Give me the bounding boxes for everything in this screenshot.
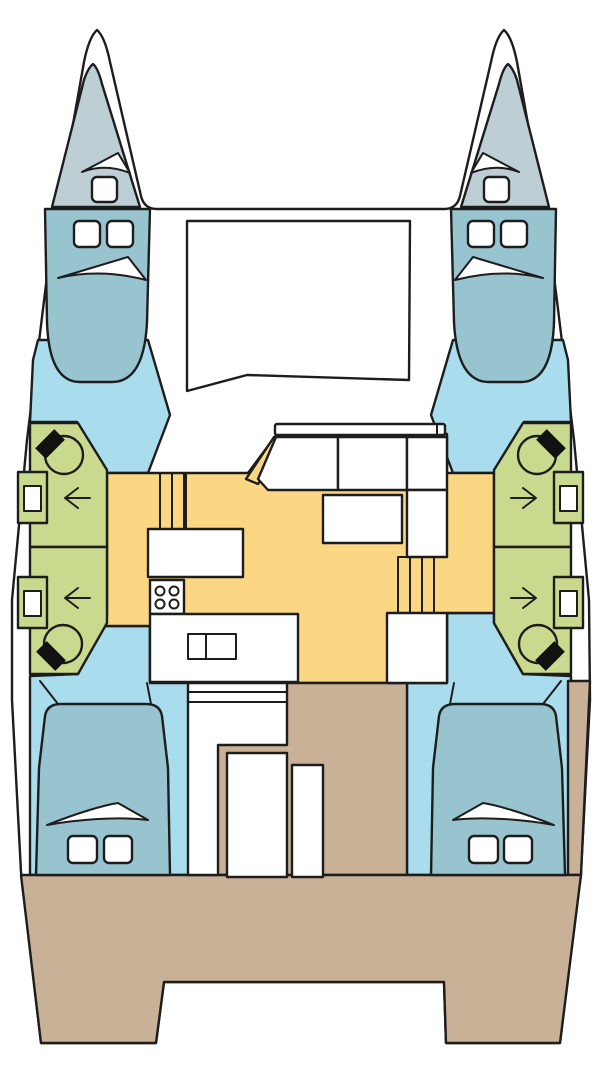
port-aft-sink (18, 577, 47, 628)
port-forepeak-hatch (92, 177, 117, 202)
cockpit-bench (292, 765, 323, 877)
aft-deck (21, 875, 581, 1043)
catamaran-layout-page (0, 0, 601, 1080)
salon-table (323, 495, 402, 543)
starboard-forward-hatch-1 (468, 221, 494, 247)
galley-sink-right (206, 634, 236, 659)
port-forward-hatch-1 (74, 221, 100, 247)
port-forward-hatch-2 (107, 221, 133, 247)
catamaran-layout-diagram (0, 0, 601, 1080)
starboard-aft-sink (554, 577, 583, 628)
starboard-forward-hatch-2 (501, 221, 527, 247)
starboard-aft-hatch-2 (504, 836, 532, 863)
coachroof-front-band (275, 424, 445, 435)
starboard-forepeak-hatch (484, 177, 509, 202)
starboard-forward-sink (554, 472, 583, 523)
cockpit-table (227, 753, 287, 877)
port-forward-sink (18, 472, 47, 523)
galley-sink-left (188, 634, 206, 659)
foredeck-trampoline (187, 221, 410, 391)
settee-corner (407, 437, 447, 490)
stove-unit (150, 580, 184, 614)
starboard-side-deck (568, 681, 590, 875)
port-aft-hatch-2 (104, 836, 132, 863)
galley-counter-top (148, 529, 243, 577)
trampoline (187, 221, 410, 391)
settee-front-mid (338, 437, 407, 490)
settee-side-bench (407, 490, 447, 557)
nav-module (387, 613, 447, 683)
port-aft-hatch-1 (68, 836, 97, 863)
starboard-aft-hatch-1 (469, 836, 498, 863)
